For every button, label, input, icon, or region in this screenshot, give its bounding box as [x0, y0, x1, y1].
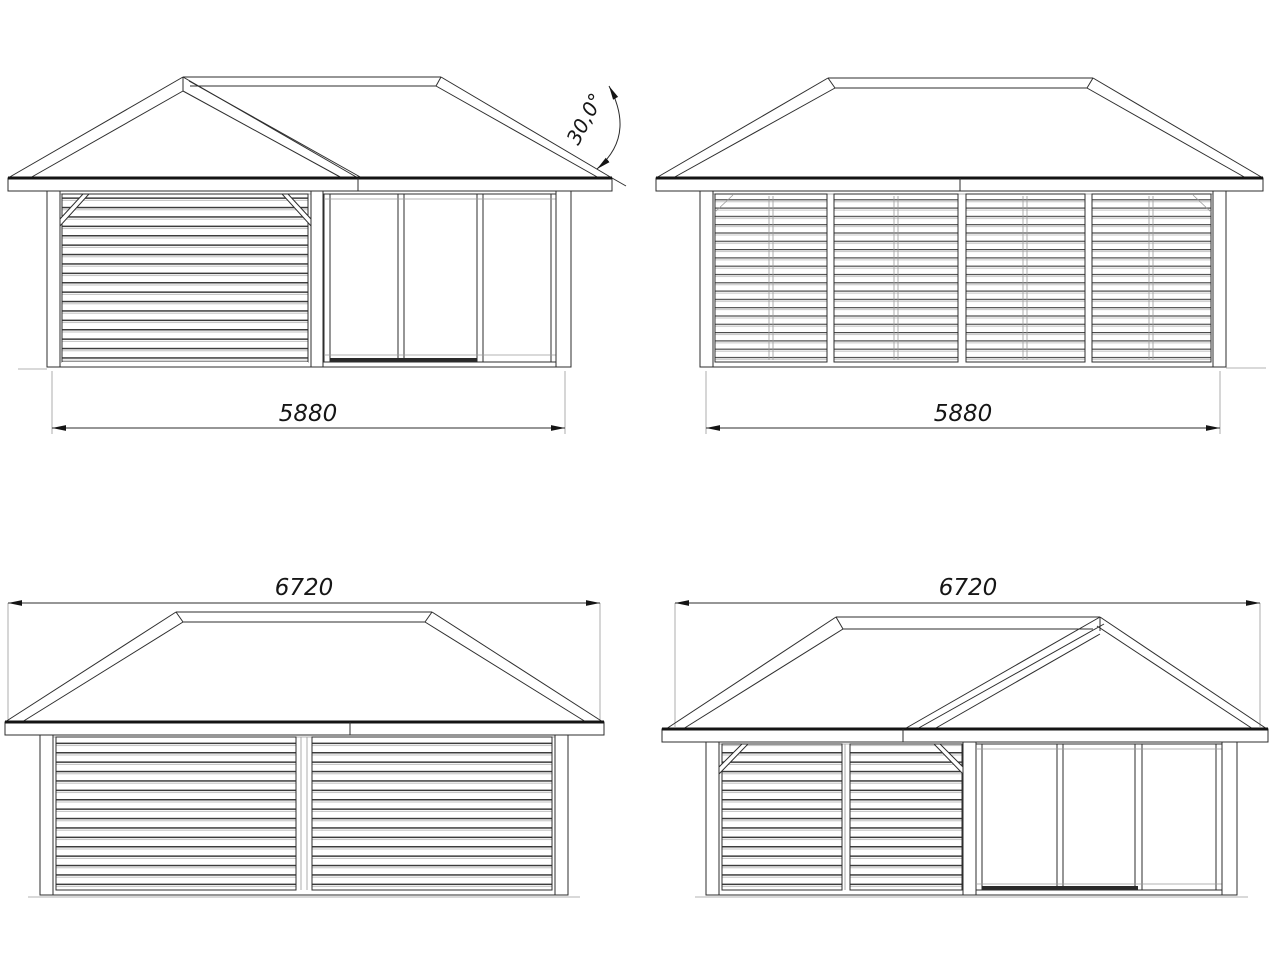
front-roof-angle-annotation: 30,0° — [561, 86, 626, 186]
slat-panel — [715, 194, 827, 362]
slat-panel — [834, 194, 958, 362]
front-roof-fascia — [8, 178, 612, 194]
glass-sliding-doors — [324, 194, 557, 362]
dimension-label-side-a: 5880 — [934, 401, 993, 427]
side-b-walls — [695, 742, 1248, 897]
rear-walls — [28, 735, 580, 897]
front-walls — [18, 191, 571, 369]
front-dimension: 5880 — [52, 371, 565, 434]
glass-sliding-doors — [976, 744, 1222, 890]
slat-panel — [56, 737, 296, 890]
side-a-dimension: 5880 — [706, 371, 1220, 434]
post — [311, 191, 323, 367]
rear-dimension: 6720 — [8, 575, 600, 720]
side-a-roof-fascia — [656, 178, 1263, 194]
dimension-label-front: 5880 — [279, 401, 338, 427]
post — [963, 742, 976, 895]
slat-panel — [312, 737, 552, 890]
front-roof-outline — [8, 77, 612, 178]
side-a-roof-outline — [656, 78, 1263, 178]
door-track — [982, 886, 1138, 890]
post — [1213, 191, 1226, 367]
side-b-dimension: 6720 — [675, 575, 1260, 727]
post — [47, 191, 60, 367]
side-b-roof-outline — [666, 617, 1267, 736]
slat-panel — [722, 744, 842, 890]
slat-panel — [966, 194, 1085, 362]
side-elevation-a-view: 5880 — [656, 78, 1266, 434]
post — [556, 191, 571, 367]
post — [700, 191, 713, 367]
dimension-label-side-b: 6720 — [939, 575, 998, 601]
side-a-walls — [700, 191, 1266, 368]
post — [1222, 742, 1237, 895]
side-elevation-b-view: 6720 — [662, 575, 1268, 897]
rear-roof-fascia — [5, 722, 604, 737]
post — [40, 735, 53, 895]
slat-panel — [62, 194, 308, 362]
drawing-sheet: 30,0° 5880 — [0, 0, 1280, 960]
post — [706, 742, 719, 895]
door-track — [330, 358, 477, 362]
slat-panel — [1092, 194, 1211, 362]
elevations-canvas: 30,0° 5880 — [0, 0, 1280, 960]
rear-roof-outline — [5, 612, 603, 722]
rear-elevation-view: 6720 — [5, 575, 604, 897]
front-elevation-view: 30,0° 5880 — [8, 77, 626, 434]
post — [555, 735, 568, 895]
roof-angle-label: 30,0° — [561, 89, 608, 148]
slat-panel — [850, 744, 962, 890]
dimension-label-rear: 6720 — [275, 575, 334, 601]
